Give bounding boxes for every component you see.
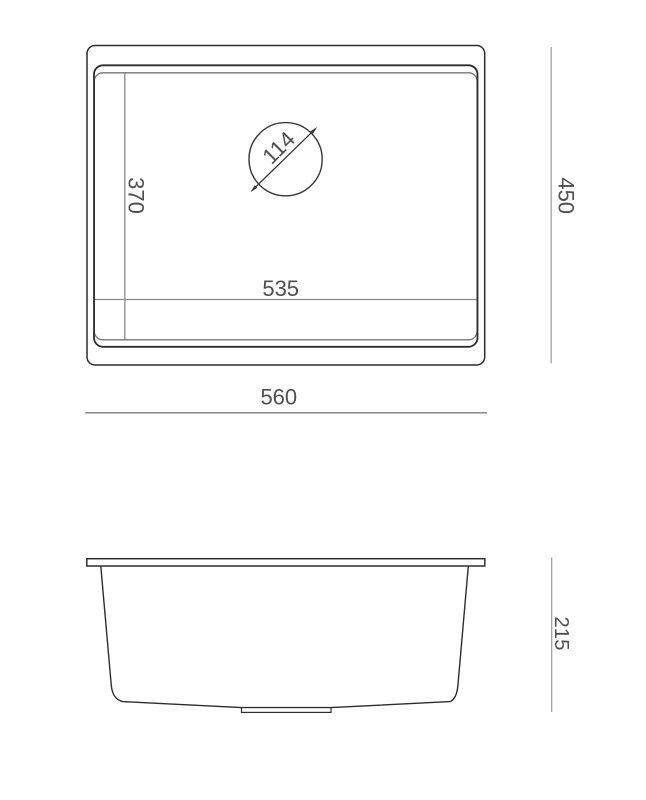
svg-text:450: 450 [554, 177, 579, 214]
svg-text:114: 114 [257, 126, 299, 168]
svg-text:560: 560 [260, 385, 297, 410]
svg-text:370: 370 [124, 177, 149, 214]
svg-text:535: 535 [262, 276, 299, 301]
svg-text:215: 215 [550, 616, 573, 650]
